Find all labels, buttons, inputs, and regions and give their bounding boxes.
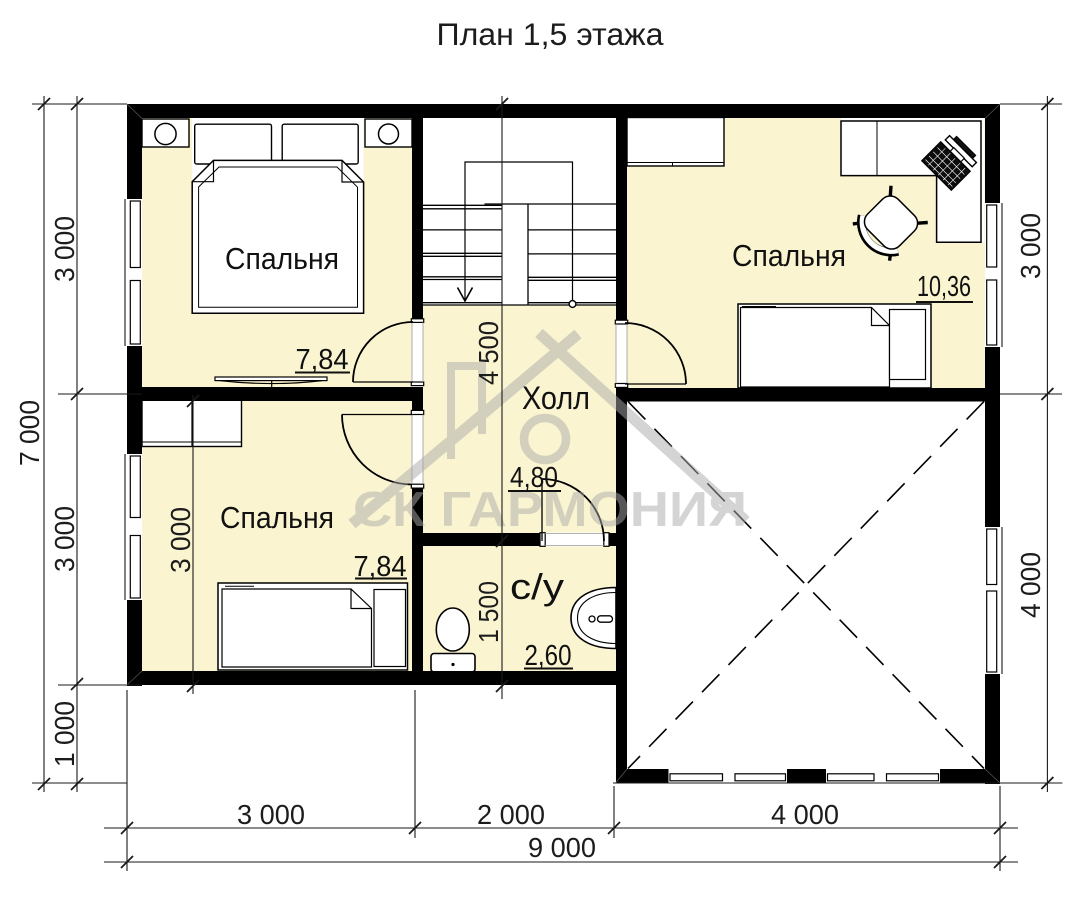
- svg-text:9 000: 9 000: [528, 832, 596, 863]
- svg-text:Спальня: Спальня: [225, 241, 339, 276]
- svg-text:1 000: 1 000: [49, 701, 80, 767]
- svg-text:10,36: 10,36: [917, 271, 971, 303]
- svg-text:с/у: с/у: [510, 566, 564, 607]
- svg-text:3 000: 3 000: [237, 799, 305, 830]
- svg-text:3 000: 3 000: [49, 216, 80, 282]
- svg-text:4 500: 4 500: [473, 321, 504, 385]
- svg-text:4 000: 4 000: [771, 799, 839, 830]
- svg-text:3 000: 3 000: [165, 507, 196, 573]
- svg-text:2 000: 2 000: [477, 799, 545, 830]
- svg-text:Спальня: Спальня: [732, 238, 846, 273]
- svg-text:4 000: 4 000: [1015, 552, 1046, 618]
- svg-text:2,60: 2,60: [525, 640, 572, 672]
- svg-text:План 1,5 этажа: План 1,5 этажа: [437, 16, 664, 52]
- svg-text:3 000: 3 000: [1015, 213, 1046, 279]
- svg-text:7 000: 7 000: [14, 400, 45, 466]
- svg-text:1 500: 1 500: [473, 581, 504, 643]
- svg-text:4,80: 4,80: [510, 462, 558, 494]
- svg-text:Спальня: Спальня: [220, 500, 334, 535]
- svg-text:Холл: Холл: [522, 380, 590, 416]
- svg-text:3 000: 3 000: [49, 506, 80, 572]
- svg-text:7,84: 7,84: [296, 344, 349, 376]
